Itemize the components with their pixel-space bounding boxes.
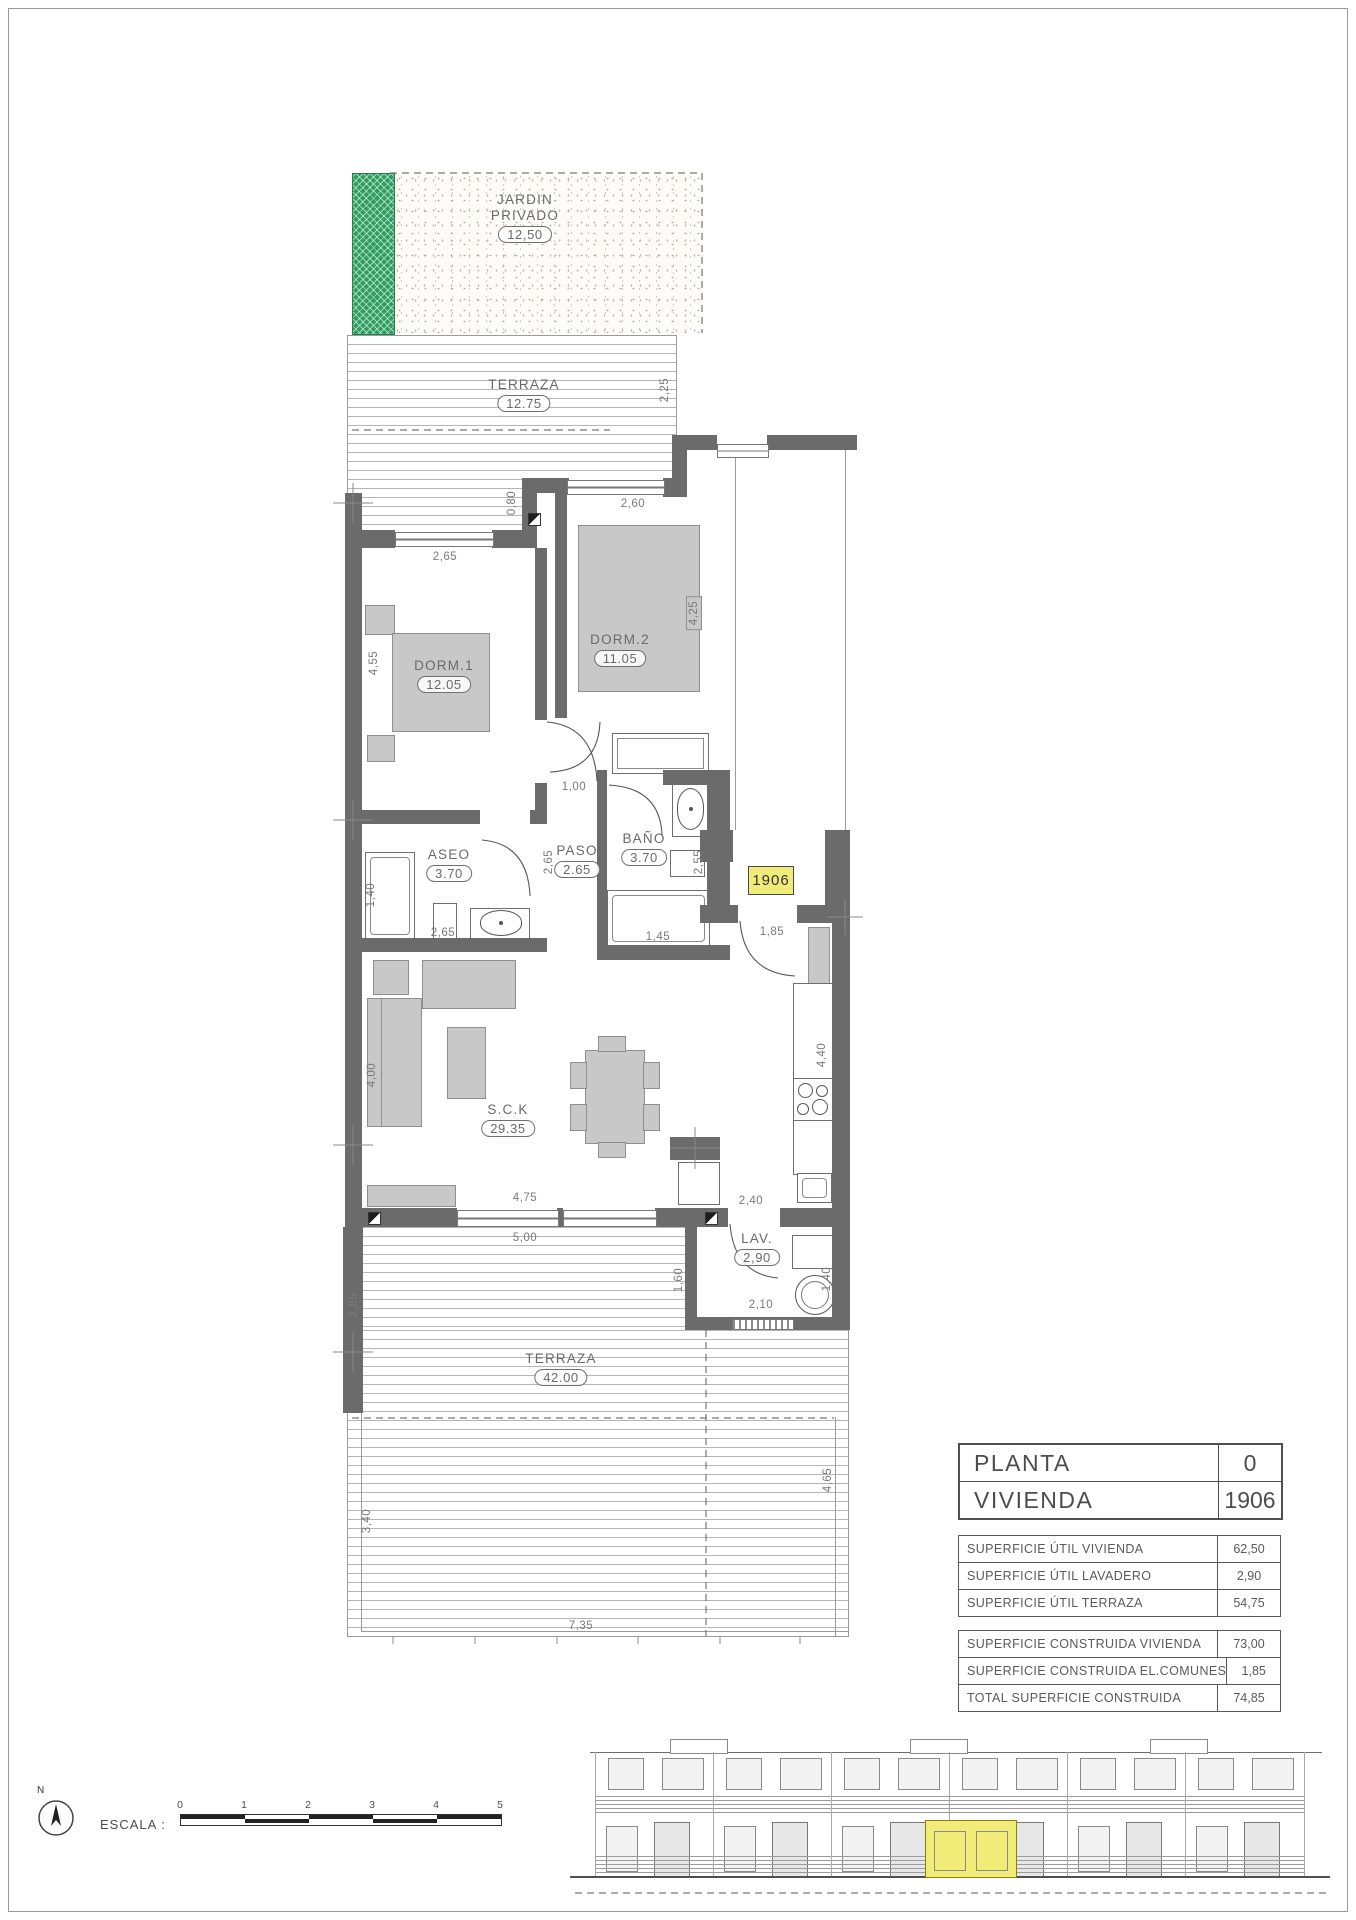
highlighted-unit-1906 xyxy=(925,1820,1017,1878)
nightstand xyxy=(365,605,395,635)
window xyxy=(717,444,769,458)
room-label-dorm2: DORM.2 11.05 xyxy=(590,632,650,668)
terrace-bottom-deck xyxy=(347,1330,848,1637)
laundry-shelf xyxy=(792,1235,835,1269)
room-area-value: 42.00 xyxy=(534,1369,588,1386)
terrace-edge xyxy=(347,1413,348,1637)
elevation-window xyxy=(726,1758,762,1790)
elevation-railing xyxy=(1068,1856,1186,1876)
table-cell-value: 1906 xyxy=(1218,1482,1281,1518)
room-area-value: 3.70 xyxy=(621,849,667,866)
room-label-sck: S.C.K 29.35 xyxy=(481,1102,535,1138)
scale-bar-row xyxy=(181,1819,501,1823)
cooktop xyxy=(793,1078,834,1122)
window xyxy=(457,1210,559,1227)
elevation-window xyxy=(976,1831,1008,1871)
north-label: N xyxy=(37,1785,44,1796)
terrace-edge xyxy=(848,1330,849,1637)
wall-segment xyxy=(345,493,362,1227)
elevation-unit xyxy=(595,1752,714,1876)
dimension: 1,40 xyxy=(821,1267,833,1291)
floor-plan-sheet: JARDIN PRIVADO 12,50 TERRAZA 12.75 DORM.… xyxy=(0,0,1356,1920)
dimension: 4,25 xyxy=(686,596,702,630)
wall-segment xyxy=(555,493,567,718)
coffee-table xyxy=(447,1027,486,1099)
wall-segment xyxy=(537,478,569,493)
table-cell-label: TOTAL SUPERFICIE CONSTRUIDA xyxy=(959,1691,1217,1705)
nightstand xyxy=(367,735,395,762)
chair xyxy=(643,1104,660,1131)
table-row: SUPERFICIE ÚTIL TERRAZA 54,75 xyxy=(959,1589,1280,1616)
kitchen-counter xyxy=(793,1120,834,1175)
elevation-railing xyxy=(596,1856,714,1876)
wall-segment xyxy=(345,530,395,548)
dimension: 4,40 xyxy=(816,1043,828,1067)
chair xyxy=(643,1062,660,1089)
table-cell-value: 54,75 xyxy=(1217,1590,1280,1616)
room-label-paso: PASO 2.65 xyxy=(554,843,600,879)
scale-tick: 2 xyxy=(305,1799,311,1811)
table-row: SUPERFICIE CONSTRUIDA EL.COMUNES 1,85 xyxy=(959,1657,1280,1684)
wall-segment xyxy=(672,435,687,497)
washbasin xyxy=(480,910,522,936)
dimension: 2,85 xyxy=(348,1293,360,1317)
chair xyxy=(570,1062,587,1089)
wall-segment xyxy=(535,783,547,810)
chair xyxy=(570,1104,587,1131)
wall-segment xyxy=(687,435,717,450)
scale-tick: 0 xyxy=(177,1799,183,1811)
dimension: 2,65 xyxy=(543,850,555,874)
north-compass: N xyxy=(36,1798,76,1843)
elevation-window xyxy=(780,1758,822,1790)
kitchen-sink xyxy=(797,1173,832,1203)
burner xyxy=(812,1099,828,1115)
elevation-railing xyxy=(714,1856,832,1876)
table-cell-label: PLANTA xyxy=(960,1450,1218,1477)
room-area-value: 12,50 xyxy=(498,226,552,243)
dimension: 2,55 xyxy=(693,850,705,874)
elevation-window xyxy=(1134,1758,1176,1790)
sofa-seats xyxy=(381,998,422,1127)
wall-segment xyxy=(832,923,850,1208)
garden-hedge-hatch xyxy=(352,173,395,335)
drain-dot xyxy=(499,921,503,925)
elevation-window xyxy=(1198,1758,1234,1790)
table-row: SUPERFICIE ÚTIL VIVIENDA 62,50 xyxy=(959,1536,1280,1562)
room-area-value: 2,90 xyxy=(734,1249,780,1266)
dimension: 2,60 xyxy=(621,498,645,510)
table-row: SUPERFICIE CONSTRUIDA VIVIENDA 73,00 xyxy=(959,1631,1280,1657)
table-cell-value: 1,85 xyxy=(1226,1658,1280,1684)
wall-segment xyxy=(597,945,730,960)
scale-tick: 3 xyxy=(369,1799,375,1811)
wall-segment xyxy=(832,1208,850,1330)
burner xyxy=(816,1085,828,1097)
dimension: 4,65 xyxy=(822,1468,834,1492)
wardrobe-inner xyxy=(617,738,704,769)
laundry-vent xyxy=(732,1319,794,1330)
wardrobe xyxy=(612,733,709,774)
sink-inner xyxy=(802,1178,827,1198)
terrace-edge xyxy=(347,1636,848,1637)
terrace-edge xyxy=(835,1417,836,1636)
kitchen-column xyxy=(670,1137,720,1160)
shutter-box-mark xyxy=(368,1212,381,1225)
shutter-box-mark xyxy=(528,513,541,526)
elevation-railing xyxy=(1186,1796,1304,1814)
dimension: 1,00 xyxy=(562,781,586,793)
useful-area-table: SUPERFICIE ÚTIL VIVIENDA 62,50 SUPERFICI… xyxy=(958,1535,1281,1617)
room-label-lav: LAV. 2,90 xyxy=(734,1231,780,1267)
burner xyxy=(798,1083,813,1098)
wall-segment xyxy=(345,938,547,952)
table-cell-label: SUPERFICIE CONSTRUIDA EL.COMUNES xyxy=(959,1664,1226,1678)
wall-segment xyxy=(362,810,480,824)
wall-segment xyxy=(707,780,730,905)
table-cell-label: SUPERFICIE ÚTIL LAVADERO xyxy=(959,1569,1217,1583)
built-area-table: SUPERFICIE CONSTRUIDA VIVIENDA 73,00 SUP… xyxy=(958,1630,1281,1712)
table-cell-label: SUPERFICIE ÚTIL VIVIENDA xyxy=(959,1542,1217,1556)
elevation-window xyxy=(1252,1758,1294,1790)
shutter-box-mark xyxy=(705,1212,718,1225)
wall-segment xyxy=(767,435,857,450)
table-row: VIVIENDA 1906 xyxy=(960,1481,1281,1518)
table-cell-value: 73,00 xyxy=(1217,1631,1280,1657)
elevation-railing xyxy=(1068,1796,1186,1814)
sofa-cushion xyxy=(373,960,409,995)
dimension: 3,40 xyxy=(361,1509,373,1533)
room-area-value: 2.65 xyxy=(554,861,600,878)
dimension: 2,25 xyxy=(659,378,671,402)
elevation-railing xyxy=(714,1796,832,1814)
dimension: 4,55 xyxy=(368,651,380,675)
room-area-value: 11.05 xyxy=(594,650,647,667)
room-label-terraza-top: TERRAZA 12.75 xyxy=(488,377,559,413)
elevation-window xyxy=(898,1758,940,1790)
dimension: 4,75 xyxy=(513,1192,537,1204)
scale-bar xyxy=(180,1814,502,1826)
elevation-window xyxy=(934,1831,966,1871)
table-cell-label: VIVIENDA xyxy=(960,1487,1218,1514)
compass-icon xyxy=(36,1798,76,1838)
table-cell-label: SUPERFICIE ÚTIL TERRAZA xyxy=(959,1596,1217,1610)
elevation-unit xyxy=(1067,1752,1186,1876)
dimension: 4,00 xyxy=(366,1063,378,1087)
wall-segment xyxy=(685,1222,697,1322)
sofa xyxy=(422,960,516,1009)
elevation-window xyxy=(662,1758,704,1790)
dining-table xyxy=(585,1050,645,1144)
room-area-value: 12.05 xyxy=(417,676,471,693)
room-label-bano: BAÑO 3.70 xyxy=(621,831,667,867)
terrace-edge xyxy=(347,335,348,493)
elevation-window xyxy=(962,1758,998,1790)
neighbour-boundary xyxy=(845,450,846,830)
table-cell-label: SUPERFICIE CONSTRUIDA VIVIENDA xyxy=(959,1637,1217,1651)
terrace-edge xyxy=(347,335,677,336)
elevation-window xyxy=(844,1758,880,1790)
table-cell-value: 0 xyxy=(1218,1445,1281,1481)
scale-tick: 4 xyxy=(433,1799,439,1811)
wall-segment xyxy=(343,1227,363,1413)
table-row: PLANTA 0 xyxy=(960,1445,1281,1481)
room-area-value: 12.75 xyxy=(497,395,551,412)
dimension: 7,35 xyxy=(569,1620,593,1632)
dimension: 1,45 xyxy=(646,931,670,943)
dimension: 2,10 xyxy=(749,1299,773,1311)
drain-dot xyxy=(689,807,693,811)
table-cell-value: 74,85 xyxy=(1217,1685,1280,1711)
elevation-railing xyxy=(832,1796,950,1814)
elevation-window xyxy=(1016,1758,1058,1790)
wall-segment xyxy=(345,1208,457,1227)
unit-number-tag: 1906 xyxy=(748,866,794,895)
wall-segment xyxy=(530,810,547,824)
cabinet xyxy=(678,1162,720,1205)
elevation-unit xyxy=(1185,1752,1305,1876)
scale-tick: 1 xyxy=(241,1799,247,1811)
terrace-edge xyxy=(361,1631,848,1632)
chair xyxy=(598,1036,626,1052)
room-label-aseo: ASEO 3.70 xyxy=(426,847,472,883)
dimension: 1,40 xyxy=(365,883,377,907)
wall-segment xyxy=(492,530,524,548)
room-label-jardin: JARDIN PRIVADO 12,50 xyxy=(479,192,571,244)
wall-segment xyxy=(700,905,738,923)
unit-info-table: PLANTA 0 VIVIENDA 1906 xyxy=(958,1443,1283,1520)
terrace-top-deck xyxy=(347,335,522,530)
dimension: 0,80 xyxy=(506,491,518,515)
dimension: 1,60 xyxy=(673,1268,685,1292)
wall-segment xyxy=(797,905,838,923)
window xyxy=(567,480,665,495)
neighbour-boundary xyxy=(735,450,736,830)
room-area-value: 3.70 xyxy=(426,865,472,882)
window xyxy=(395,532,494,547)
wall-segment xyxy=(535,548,547,720)
elevation-railing xyxy=(596,1796,714,1814)
building-elevation xyxy=(570,1738,1330,1888)
room-area-value: 29.35 xyxy=(481,1120,535,1137)
burner xyxy=(797,1103,809,1115)
tv-unit xyxy=(367,1185,456,1207)
room-label-dorm1: DORM.1 12.05 xyxy=(414,658,474,694)
dimension: 1,85 xyxy=(760,926,784,938)
scale-label: ESCALA : xyxy=(100,1817,166,1832)
elevation-window xyxy=(608,1758,644,1790)
fridge xyxy=(808,927,830,984)
table-cell-value: 2,90 xyxy=(1217,1563,1280,1589)
elevation-unit xyxy=(713,1752,832,1876)
scale-tick: 5 xyxy=(497,1799,503,1811)
dimension: 2,65 xyxy=(433,551,457,563)
table-row: TOTAL SUPERFICIE CONSTRUIDA 74,85 xyxy=(959,1684,1280,1711)
room-label-terraza-bottom: TERRAZA 42.00 xyxy=(525,1351,596,1387)
elevation-railing xyxy=(950,1796,1068,1814)
chair xyxy=(598,1142,626,1158)
dimension: 5,00 xyxy=(513,1232,537,1244)
elevation-window xyxy=(1080,1758,1116,1790)
dimension: 2,40 xyxy=(739,1195,763,1207)
dimension: 2,65 xyxy=(431,927,455,939)
window xyxy=(563,1210,657,1227)
table-row: SUPERFICIE ÚTIL LAVADERO 2,90 xyxy=(959,1562,1280,1589)
wall-segment xyxy=(663,770,730,785)
elevation-railing xyxy=(1186,1856,1304,1876)
table-cell-value: 62,50 xyxy=(1217,1536,1280,1562)
washbasin xyxy=(677,788,704,830)
